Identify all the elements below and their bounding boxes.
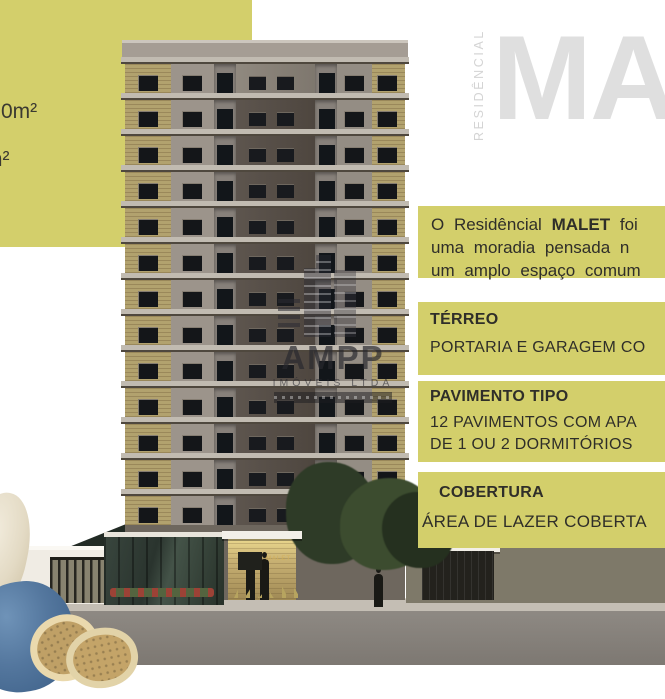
center-core [236, 100, 315, 129]
terreo-section-box: TÉRREO PORTARIA E GARAGEM CO [418, 302, 665, 375]
core-window [249, 508, 266, 522]
core-window [249, 292, 266, 306]
floor-slab [121, 57, 409, 64]
core-window [249, 472, 266, 486]
terreo-line: PORTARIA E GARAGEM CO [430, 337, 665, 358]
window [182, 435, 202, 451]
window [138, 363, 158, 379]
window [344, 75, 364, 91]
window [138, 435, 158, 451]
core-window [277, 220, 294, 234]
window [377, 183, 397, 199]
core-window [249, 184, 266, 198]
window [138, 255, 158, 271]
window [182, 399, 202, 415]
entrance-canopy [222, 531, 302, 539]
watermark-agency-name: AMPP [268, 341, 398, 374]
window [182, 255, 202, 271]
intro-line1-pre: O Residêncial [431, 215, 542, 234]
pavimento-title: PAVIMENTO TIPO [430, 388, 665, 406]
window [377, 111, 397, 127]
window [182, 507, 202, 523]
window [138, 507, 158, 523]
tower-floor [125, 201, 405, 237]
area-text-fragment-2: m² [0, 148, 10, 172]
window [138, 399, 158, 415]
window [344, 435, 364, 451]
window [138, 75, 158, 91]
core-window [277, 436, 294, 450]
window [138, 327, 158, 343]
window [182, 291, 202, 307]
window [377, 75, 397, 91]
window [138, 183, 158, 199]
flower-bed [110, 588, 214, 597]
cobertura-line: ÁREA DE LAZER COBERTA [422, 511, 665, 532]
ghost-brand-word: MA [492, 18, 665, 138]
floor-slab [121, 237, 409, 244]
tower-floor [125, 57, 405, 93]
window [377, 435, 397, 451]
watermark-bars-icon [278, 299, 300, 329]
flyer-canvas: { "accent_olive": "#d3cf6b", "left_panel… [0, 0, 665, 665]
intro-line1-post: foi [620, 215, 638, 234]
floor-slab [121, 201, 409, 208]
floor-walls [125, 172, 405, 201]
intro-line3: um amplo espaço comum [431, 261, 641, 280]
vertical-residencial-label: RESIDÊNCIAL [472, 29, 486, 141]
window [182, 471, 202, 487]
cobertura-section-box: COBERTURA ÁREA DE LAZER COBERTA [418, 472, 665, 548]
window [138, 147, 158, 163]
cobertura-title: COBERTURA [439, 484, 665, 502]
window [182, 111, 202, 127]
pavimento-section-box: PAVIMENTO TIPO 12 PAVIMENTOS COM APA DE … [418, 381, 665, 462]
window [344, 183, 364, 199]
facade-sign-text: MALET [266, 556, 291, 562]
intro-brand-name: MALET [552, 215, 611, 234]
window [377, 219, 397, 235]
center-core [236, 136, 315, 165]
floor-walls [125, 64, 405, 93]
watermark-building-icon [334, 270, 356, 337]
core-window [249, 112, 266, 126]
window [344, 147, 364, 163]
watermark-contact-bar [274, 392, 392, 403]
center-core [236, 64, 315, 93]
core-window [249, 256, 266, 270]
floor-walls [125, 136, 405, 165]
tower-floor [125, 165, 405, 201]
watermark-agency-subtitle: IMÓVEIS LTDA [268, 377, 398, 389]
window [344, 111, 364, 127]
tower-floor [125, 93, 405, 129]
floor-slab [121, 129, 409, 136]
floor-walls [125, 424, 405, 453]
core-window [277, 148, 294, 162]
center-core [236, 424, 315, 453]
intro-text-box: O Residêncial MALET foi uma moradia pens… [418, 206, 665, 278]
window [182, 219, 202, 235]
window [138, 471, 158, 487]
core-window [249, 148, 266, 162]
window [344, 219, 364, 235]
floor-slab [121, 93, 409, 100]
pavimento-line2: DE 1 OU 2 DORMITÓRIOS [430, 434, 665, 455]
floor-slab [121, 417, 409, 424]
floor-walls [125, 100, 405, 129]
terreo-title: TÉRREO [430, 311, 665, 329]
agency-watermark: AMPP IMÓVEIS LTDA [268, 255, 398, 405]
window [182, 183, 202, 199]
window [182, 147, 202, 163]
center-core [236, 172, 315, 201]
center-core [236, 208, 315, 237]
window [377, 147, 397, 163]
watermark-building-icon [304, 255, 331, 337]
pedestrian-silhouette [374, 574, 383, 607]
intro-line2: uma moradia pensada n [431, 238, 629, 257]
window [138, 291, 158, 307]
window [138, 219, 158, 235]
window [182, 363, 202, 379]
floor-slab [121, 165, 409, 172]
core-window [277, 76, 294, 90]
core-window [277, 184, 294, 198]
window [138, 111, 158, 127]
core-window [249, 220, 266, 234]
floor-slab [121, 453, 409, 460]
area-text-fragment-1: 0m² [1, 100, 37, 124]
core-window [249, 76, 266, 90]
tower-floor [125, 129, 405, 165]
floor-walls [125, 208, 405, 237]
window [182, 327, 202, 343]
core-window [249, 328, 266, 342]
tower-floor [125, 417, 405, 453]
core-window [249, 400, 266, 414]
core-window [249, 436, 266, 450]
core-window [277, 112, 294, 126]
pavimento-line1: 12 PAVIMENTOS COM APA [430, 412, 665, 433]
entrance-sign-panel [238, 552, 262, 570]
window [182, 75, 202, 91]
core-window [249, 364, 266, 378]
